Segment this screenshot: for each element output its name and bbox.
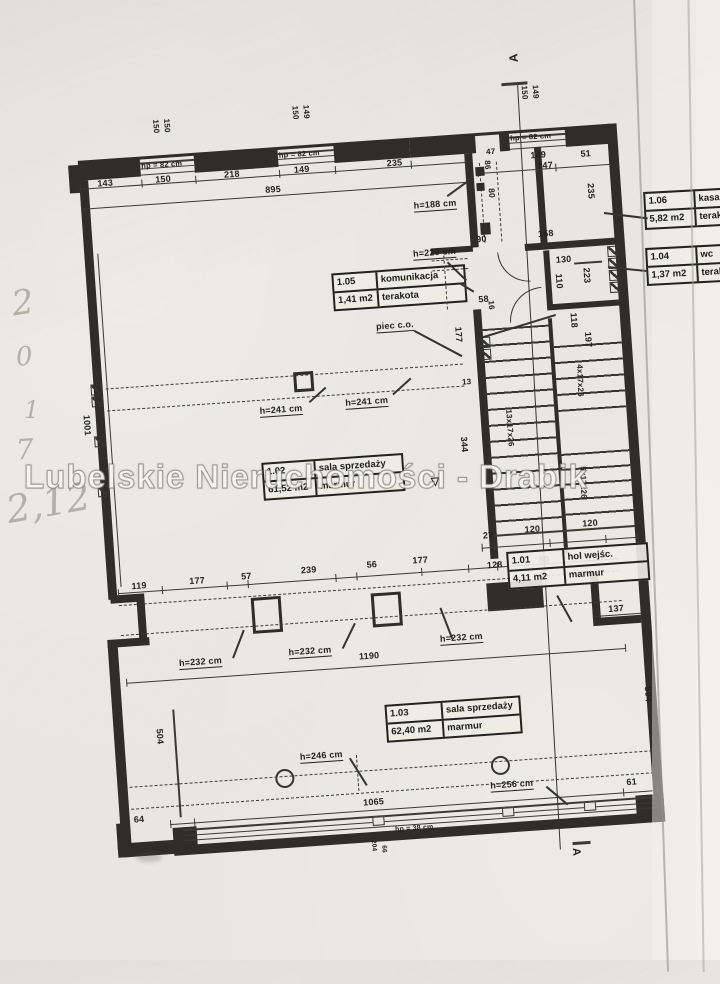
wall-segment: [543, 250, 553, 308]
dimension-label: 223: [581, 267, 591, 283]
leader-line: [232, 630, 244, 659]
section-marker-letter: A: [507, 53, 520, 63]
dimension-label: 120: [524, 525, 540, 535]
wall-hatch-mark: [609, 269, 621, 281]
dimension-label: 149: [294, 165, 310, 175]
dimension-tick: [356, 572, 358, 580]
room-id: 1.06: [645, 191, 696, 210]
dimension-label: 239: [301, 565, 317, 575]
dimension-label: 61: [626, 777, 637, 787]
window-mullion: [372, 816, 385, 826]
dashed-guide-line: [131, 772, 654, 810]
room-floor: marmur: [444, 718, 483, 737]
dimension-label: 118: [569, 312, 579, 328]
dimension-label: piec c.o.: [376, 320, 415, 334]
dimension-label: 47: [486, 148, 496, 157]
dimension-label: 128: [487, 560, 503, 570]
wall-hatch-mark: [91, 396, 103, 408]
door-swing-arc: [497, 250, 531, 284]
scanned-floor-plan-page: { "watermark": { "text": "Lubelskie Nier…: [0, 0, 720, 960]
leader-line: [556, 595, 572, 622]
pencil-handwriting: 2: [10, 285, 36, 322]
room-area: 62,40 m2: [388, 721, 445, 741]
paper-stain: [136, 852, 162, 862]
leader-line: [392, 378, 411, 395]
wall-segment: [565, 126, 612, 147]
drawing-line: [172, 710, 181, 818]
dimension-label: 150: [155, 174, 171, 184]
dimension-label: 149: [531, 85, 540, 99]
room-label-1-04: 1.04wc 1,37 m2terakota: [645, 240, 720, 286]
pillar-outline: [371, 591, 403, 627]
wall-segment: [547, 299, 621, 310]
dimension-tick: [279, 170, 281, 178]
dimension-label: 120: [582, 519, 598, 529]
dimension-label: 80: [487, 188, 496, 198]
dimension-tick: [194, 818, 196, 826]
dimension-label: 57: [241, 572, 252, 582]
dimension-label: h=232 cm: [179, 656, 223, 670]
room-label-1-06: 1.06kasa 5,82 m2terakota: [643, 184, 720, 230]
dimension-label: h=232 cm: [288, 645, 332, 659]
room-area: 5,82 m2: [646, 209, 697, 228]
room-label-1-03: 1.03sala sprzedaży 62,40 m2marmur: [384, 695, 522, 742]
dimension-label: h=241 cm: [259, 404, 303, 418]
dimension-label: 90: [476, 235, 487, 245]
dimension-label: 177: [412, 555, 428, 565]
dimension-tick: [421, 568, 423, 576]
dimension-label: 149: [301, 105, 310, 119]
dimension-label: 150: [520, 85, 529, 99]
dimension-label: 4x17x26: [575, 364, 584, 397]
wall-segment: [499, 133, 510, 152]
dimension-label: 1190: [359, 651, 380, 661]
wall-hatch-mark: [610, 281, 622, 293]
dimension-tick: [126, 679, 128, 687]
dimension-label: 66: [380, 845, 387, 853]
dimension-label: h=241 cm: [345, 396, 389, 410]
window-mullion: [584, 801, 597, 811]
dimension-label: 1065: [363, 797, 384, 807]
drawing-line: [574, 261, 602, 264]
dimension-label: 51: [580, 149, 591, 159]
leader-line: [342, 623, 356, 649]
dimension-label: 158: [538, 229, 554, 239]
dimension-label: 177: [453, 327, 463, 343]
pencil-handwriting: 0: [15, 343, 34, 370]
dimension-label: 150: [162, 118, 171, 132]
dimension-label: 137: [608, 604, 624, 614]
dimension-label: 197: [583, 331, 593, 347]
window-mullion: [502, 807, 515, 817]
wall-hatch-mark: [94, 436, 106, 448]
room-name: kasa: [695, 190, 720, 207]
wall-hatch-mark: [607, 245, 619, 257]
dimension-label: 344: [459, 436, 469, 452]
dimension-label: h=232 cm: [440, 632, 484, 646]
dimension-label: hp = 82 cm: [141, 160, 182, 170]
column-circle: [490, 755, 510, 775]
pillar-outline: [251, 596, 283, 634]
dimension-label: 16: [487, 300, 496, 310]
door-swing-arc: [508, 287, 544, 323]
dimension-label: 64: [134, 815, 145, 825]
agency-watermark: Lubelskie Nieruchomości - Drabik: [24, 458, 720, 496]
dimension-label: hp = 82 cm: [279, 149, 320, 159]
dimension-label: 13x17x26: [504, 409, 515, 447]
room-floor: terakota: [696, 207, 720, 225]
dimension-label: 1001: [82, 415, 92, 436]
stairs-treads: [554, 341, 626, 412]
wall-segment: [525, 238, 617, 251]
room-id: 1.05: [333, 272, 378, 291]
dimension-label: 247: [537, 161, 553, 171]
pencil-handwriting: 1: [24, 398, 39, 422]
dashed-guide-line: [496, 162, 503, 242]
room-floor: terakota: [698, 263, 720, 281]
wall-hatch-mark: [90, 384, 102, 396]
dimension-tick: [170, 820, 172, 828]
dimension-tick: [226, 582, 228, 590]
dimension-label: 86: [483, 160, 492, 170]
dimension-tick: [411, 161, 413, 169]
dimension-label: h=188 cm: [413, 199, 457, 213]
dimension-label: 110: [554, 273, 564, 289]
stairs-treads: [479, 324, 563, 534]
dimension-tick: [118, 589, 120, 597]
dimension-label: h=246 cm: [300, 750, 344, 764]
dimension-tick: [335, 574, 337, 582]
dimension-label: 150: [290, 105, 299, 119]
column-circle: [275, 768, 295, 788]
dimension-label: 204: [369, 840, 376, 852]
room-label-1-01: 1.01hol wejśc. 4,11 m2marmur: [506, 542, 650, 590]
dimension-label: 218: [224, 170, 240, 180]
dimension-label: 504: [155, 728, 165, 744]
dimension-label: 56: [366, 560, 377, 570]
dimension-label: 895: [265, 185, 281, 195]
section-marker-letter: A: [570, 848, 582, 857]
dimension-tick: [162, 586, 164, 594]
dimension-label: 13: [462, 378, 472, 387]
dimension-label: 27: [483, 531, 494, 541]
dimension-tick: [468, 565, 470, 573]
room-floor: marmur: [565, 565, 604, 584]
dimension-label: 177: [189, 576, 205, 586]
dimension-label: h=256 cm: [490, 779, 534, 793]
drawing-line: [572, 841, 590, 845]
dimension-label: 149: [530, 150, 546, 160]
dimension-tick: [481, 544, 483, 552]
dimension-tick: [625, 644, 627, 652]
room-name: wc: [697, 247, 714, 264]
dimension-tick: [335, 166, 337, 174]
dimension-tick: [555, 164, 557, 172]
wall-block: [476, 183, 485, 192]
dimension-label: 119: [131, 581, 147, 591]
room-floor: terakota: [379, 287, 420, 306]
room-area: 1,41 m2: [335, 290, 380, 309]
dimension-tick: [623, 788, 625, 796]
room-name: hol wejśc.: [564, 547, 613, 566]
dimension-label: 235: [386, 158, 402, 168]
dashed-guide-line: [130, 750, 653, 788]
dimension-label: 150: [151, 119, 160, 133]
room-area: 4,11 m2: [509, 568, 566, 588]
dimension-label: 143: [97, 179, 113, 189]
dimension-tick: [195, 176, 197, 184]
dimension-tick: [141, 179, 143, 187]
dimension-tick: [605, 535, 607, 543]
dimension-label: 235: [586, 183, 596, 199]
dimension-label: 130: [556, 255, 572, 265]
dimension-tick: [549, 539, 551, 547]
dimension-tick: [247, 580, 249, 588]
